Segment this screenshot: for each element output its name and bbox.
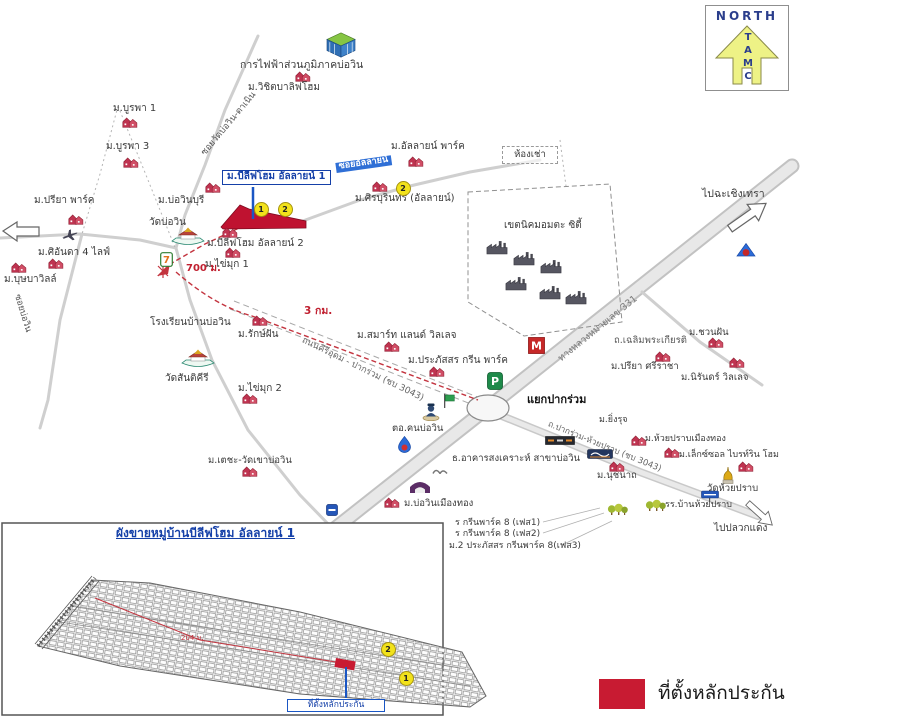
map-label: ม.บ่อวินเมืองทอง	[404, 499, 473, 509]
map-label: ร กรีนพาร์ค 8 (เฟส1)	[455, 519, 540, 529]
map-label: โรงเรียนบ้านบ่อวิน	[150, 318, 231, 329]
factory-icon	[540, 259, 562, 274]
house-marker-icon	[68, 214, 84, 225]
number-badge: 2	[381, 642, 396, 657]
house-marker-icon	[408, 156, 424, 167]
number-badge: 1	[399, 671, 414, 686]
map-label: ม.บุษบาวิลล์	[4, 275, 57, 286]
inset-title: ผังขายหมู่บ้านบีลีฟโฮม อัลลายน์ 1	[116, 527, 295, 540]
gas-station-icon	[397, 436, 412, 453]
house-marker-icon	[48, 258, 64, 269]
map-label: ม.นุชนาถ	[597, 471, 637, 481]
gate-icon	[409, 481, 431, 493]
map-label: ม.นิรันดร์ วิลเลจ	[681, 373, 748, 383]
map-label: วัดสันติคีรี	[165, 374, 209, 385]
map-label: ม.ประภัสสร กรีน พาร์ค	[408, 356, 508, 367]
legend-label: ที่ตั้งหลักประกัน	[658, 683, 785, 704]
shrine-icon	[736, 243, 756, 257]
factory-icon	[513, 251, 535, 266]
road-label: ถ.เฉลิมพระเกียรติ	[614, 336, 687, 346]
house-marker-icon	[205, 182, 221, 193]
map-label: รร.บ้านห้วยปราบ	[665, 501, 732, 511]
map-label: ม.เตชะ-วัดเขาบ่อวิน	[208, 456, 292, 466]
seven-eleven-icon	[160, 252, 173, 267]
rocks-icon	[432, 466, 448, 474]
trees-icon	[607, 503, 629, 516]
map-label: ม.อัลลายน์ พาร์ค	[391, 142, 465, 153]
police-booth-icon	[422, 401, 440, 421]
map-label: ม.สมาร์ท แลนด์ วิลเลจ	[357, 331, 456, 342]
map-label: ม.2 ประภัสสร กรีนพาร์ค 8(เฟส3)	[449, 542, 581, 552]
direction-label: ไปปลวกแดง	[714, 524, 767, 535]
factory-icon	[565, 290, 587, 305]
map-label: ม.บูรพา 3	[106, 142, 149, 153]
number-badge: 1	[254, 202, 269, 217]
map-label: ม.บ่อวินบุรี	[158, 196, 204, 207]
map-label: ม.ชวนฝัน	[689, 328, 729, 338]
house-marker-icon	[384, 341, 400, 352]
factory-icon	[539, 285, 561, 300]
house-marker-icon	[738, 461, 754, 472]
makro-icon	[528, 337, 545, 354]
map-label: ม.รักษ์ฝัน	[238, 330, 278, 341]
map-label: ม.ปรียา ศรีราชา	[611, 362, 679, 372]
house-marker-icon	[123, 157, 139, 168]
house-marker-icon	[122, 117, 138, 128]
distance-label: 700 ม.	[186, 264, 221, 275]
map-label: ม.วิชิตบาลิฟโฮม	[248, 83, 320, 94]
junction-label: แยกปากร่วม	[527, 394, 586, 406]
map-label: ม.บีลีฟโฮม อัลลายน์ 2	[207, 239, 304, 250]
house-marker-icon	[295, 71, 311, 82]
house-marker-icon	[655, 351, 671, 362]
map-label: ม.ศิอันดา 4 ไลฟ์	[38, 248, 110, 259]
house-marker-icon	[729, 357, 745, 368]
trees-icon	[645, 499, 667, 512]
map-label: ม.ห้วยปราบเมืองทอง	[645, 435, 726, 445]
map-label: ม.ปรียา พาร์ค	[34, 196, 94, 207]
house-marker-icon	[372, 181, 388, 192]
green-flag-icon	[443, 394, 455, 408]
map-label: การไฟฟ้าส่วนภูมิภาคบ่อวิน	[240, 60, 363, 71]
house-marker-icon	[429, 366, 445, 377]
house-marker-icon	[222, 227, 238, 238]
blue-sign-icon	[326, 504, 338, 516]
map-label: ธ.อาคารสงเคราะห์ สาขาบ่อวิน	[452, 454, 580, 464]
map-label: ร กรีนพาร์ค 8 (เฟส2)	[455, 530, 540, 540]
temple-icon	[180, 349, 216, 369]
house-marker-icon	[664, 447, 680, 458]
house-marker-icon	[242, 466, 258, 477]
map-label: เขตนิคมอมตะ ซิตี้	[504, 221, 582, 232]
house-marker-icon	[11, 262, 27, 273]
prapassorn-logo-icon	[487, 372, 503, 390]
house-marker-icon	[384, 497, 400, 508]
map-label: ตอ.คนบ่อวิน	[392, 424, 443, 434]
house-marker-icon	[252, 315, 268, 326]
subject-label-box: ม.บีลีฟโฮม อัลลายน์ 1	[222, 170, 331, 185]
map-canvas: 7 M P	[0, 0, 900, 717]
legend-swatch	[599, 679, 645, 709]
map-label: ม.บูรพา 1	[113, 104, 156, 115]
map-label: วัดห้วยปราบ	[707, 484, 758, 494]
distance-label: 204 ม.	[181, 635, 203, 643]
number-badge: 2	[278, 202, 293, 217]
factory-icon	[486, 240, 508, 255]
map-label: วัดบ่อวิน	[149, 218, 186, 229]
rental-rooms-box: ห้องเช่า	[502, 146, 558, 164]
compass-letters: T A M C	[741, 31, 755, 83]
map-label: ม.เล็กซ์ซอล ไบรท์ริน โฮม	[679, 451, 779, 461]
factory-icon	[505, 276, 527, 291]
temple-icon	[170, 227, 206, 247]
north-compass: NORTH T A M C	[705, 5, 789, 91]
distance-label: 3 กม.	[304, 306, 332, 317]
direction-label: ไปฉะเชิงเทรา	[702, 189, 765, 200]
number-badge: 2	[396, 181, 411, 196]
map-label: ม.ศิรบุรินทร์ (อัลลายน์)	[355, 194, 455, 205]
map-label: ม.ไข่มุก 2	[238, 384, 282, 395]
inset-callout: ที่ตั้งหลักประกัน	[287, 699, 385, 712]
electricity-building-icon	[322, 31, 360, 59]
map-label: ม.ยิ่งรุจ	[599, 416, 628, 426]
